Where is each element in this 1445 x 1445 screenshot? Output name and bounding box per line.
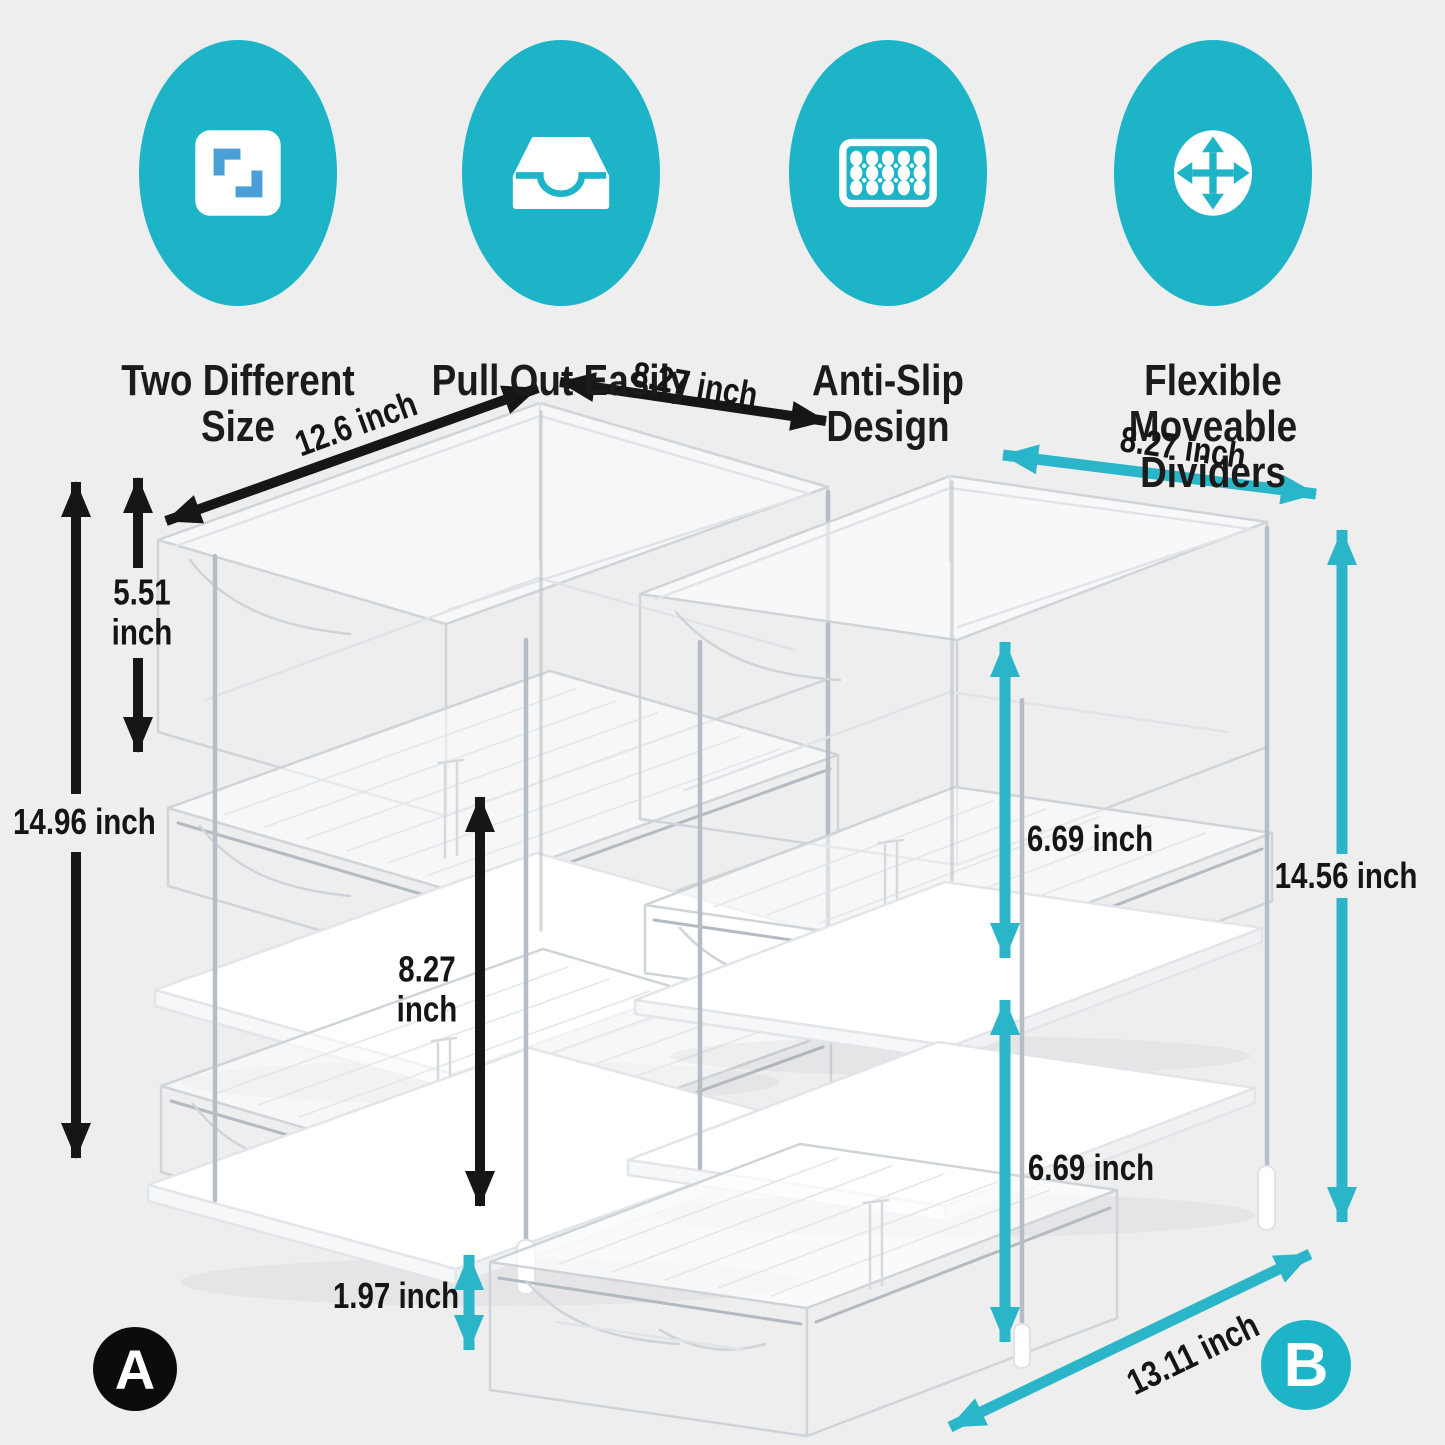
anti-slip-dots-icon [827, 109, 949, 237]
dimension-label-a-tier-gap: 8.27 inch [389, 950, 464, 1031]
feature-anti-slip-design: Anti-Slip Design [733, 40, 1043, 450]
feature-two-different-size: Two Different Size [78, 40, 398, 450]
dimension-label-b-total-height: 14.56 inch [1275, 856, 1418, 896]
dimension-label-b-tier1-height: 6.69 inch [1027, 819, 1153, 859]
feature-circle [1114, 40, 1312, 306]
dimension-label-a-total-height: 14.96 inch [13, 802, 156, 842]
unit-a-badge: A [93, 1327, 177, 1411]
pull-out-drawer-icon [500, 109, 622, 237]
dimension-label-a-tier1-height: 5.51 inch [104, 573, 179, 654]
two-sizes-icon [177, 109, 299, 237]
feature-circle [139, 40, 337, 306]
feature-label: Flexible Moveable Dividers [1074, 358, 1351, 497]
move-arrows-icon [1152, 109, 1274, 237]
feature-label: Anti-Slip Design [758, 358, 1018, 450]
feature-flexible-moveable-dividers: Flexible Moveable Dividers [1048, 40, 1378, 497]
feature-pull-out-easily: Pull Out Easily [401, 40, 721, 404]
feature-circle [462, 40, 660, 306]
dimension-label-b-tier2-height: 6.69 inch [1028, 1148, 1154, 1188]
product-dimension-infographic: Two Different Size Pull Out Easily [0, 0, 1445, 1445]
unit-b-badge: B [1261, 1320, 1351, 1410]
feature-circle [789, 40, 987, 306]
dimension-label-a-tray-height: 1.97 inch [333, 1276, 459, 1316]
